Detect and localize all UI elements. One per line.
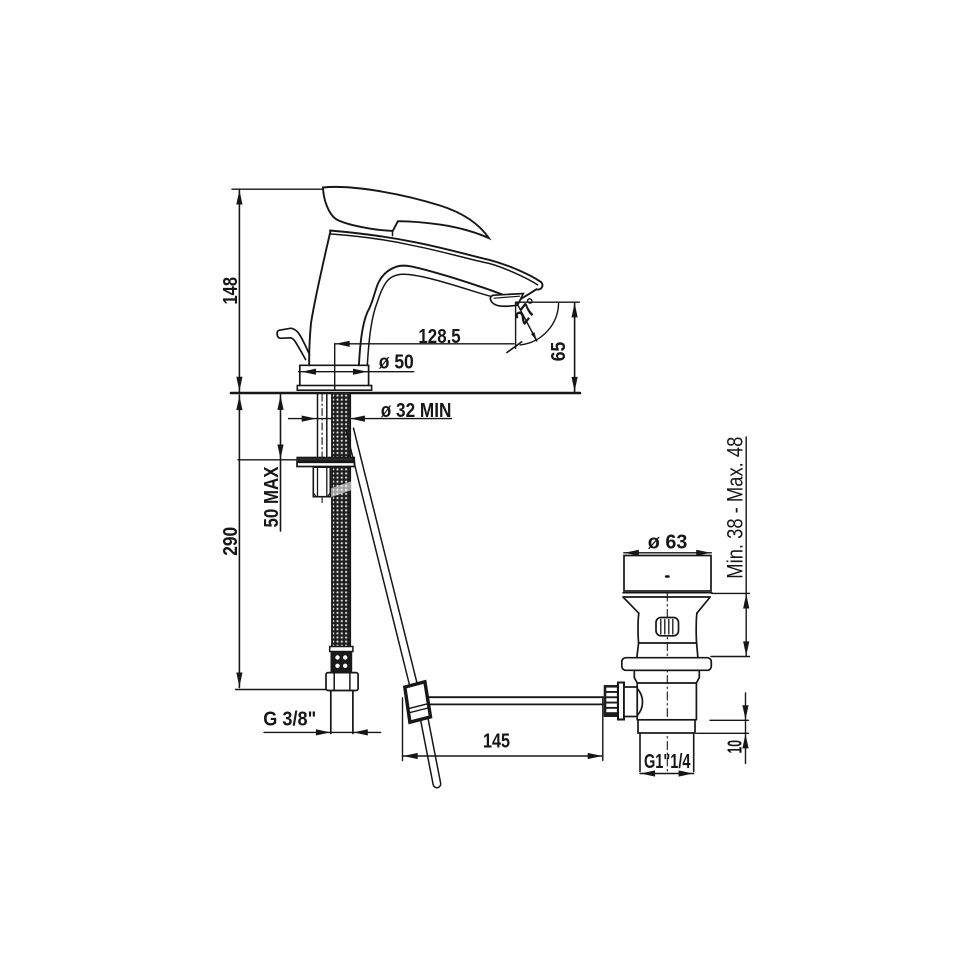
- svg-text:G1"1/4: G1"1/4: [644, 751, 691, 773]
- svg-text:ø 50: ø 50: [379, 351, 414, 373]
- svg-text:148: 148: [220, 277, 242, 305]
- svg-text:G 3/8": G 3/8": [263, 709, 316, 731]
- svg-text:65: 65: [548, 342, 570, 362]
- svg-text:ø 63: ø 63: [648, 532, 688, 554]
- svg-text:50 MAX: 50 MAX: [261, 466, 283, 528]
- svg-text:145: 145: [483, 731, 510, 753]
- svg-text:290: 290: [220, 527, 242, 556]
- svg-text:Min. 38 - Max. 48: Min. 38 - Max. 48: [723, 437, 748, 579]
- svg-text:10: 10: [725, 740, 747, 754]
- svg-text:ø 32 MIN: ø 32 MIN: [381, 400, 452, 422]
- svg-text:128.5: 128.5: [418, 326, 460, 348]
